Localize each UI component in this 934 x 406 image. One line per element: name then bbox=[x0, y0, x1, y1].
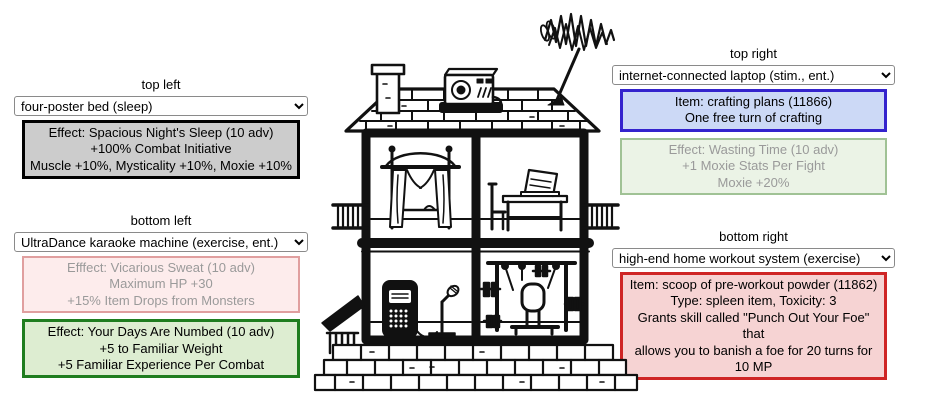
item-box-top-right: Item: crafting plans (11866) One free tu… bbox=[620, 89, 887, 132]
panel-label-top-right: top right bbox=[612, 46, 895, 62]
panel-label-bottom-left: bottom left bbox=[14, 213, 308, 229]
panel-top-right: top right internet-connected laptop (sti… bbox=[612, 46, 895, 195]
panel-label-top-left: top left bbox=[14, 77, 308, 93]
panel-top-left: top left four-poster bed (sleep) Effect:… bbox=[14, 77, 308, 179]
panel-bottom-left: bottom left UltraDance karaoke machine (… bbox=[14, 213, 308, 378]
effect-box-top-left: Effect: Spacious Night's Sleep (10 adv) … bbox=[22, 120, 300, 179]
device-select-top-right[interactable]: internet-connected laptop (stim., ent.) bbox=[612, 65, 895, 85]
house-illustration bbox=[300, 0, 645, 406]
roof-radio-icon bbox=[440, 69, 502, 112]
effect-box-top-right-inactive: Effect: Wasting Time (10 adv) +1 Moxie S… bbox=[620, 138, 887, 195]
effect-box-bottom-left-inactive: Efffect: Vicarious Sweat (10 adv) Maximu… bbox=[22, 256, 300, 313]
panel-label-bottom-right: bottom right bbox=[612, 229, 895, 245]
device-select-bottom-left[interactable]: UltraDance karaoke machine (exercise, en… bbox=[14, 232, 308, 252]
panel-bottom-right: bottom right high-end home workout syste… bbox=[612, 229, 895, 380]
item-box-bottom-right: Item: scoop of pre-workout powder (11862… bbox=[620, 272, 887, 380]
chimney-icon bbox=[372, 65, 404, 113]
device-select-top-left[interactable]: four-poster bed (sleep) bbox=[14, 96, 308, 116]
karaoke-machine-icon bbox=[383, 281, 417, 337]
effect-box-bottom-left-active: Effect: Your Days Are Numbed (10 adv) +5… bbox=[22, 319, 300, 378]
stone-foundation-icon bbox=[315, 345, 637, 390]
device-select-bottom-right[interactable]: high-end home workout system (exercise) bbox=[612, 248, 895, 268]
